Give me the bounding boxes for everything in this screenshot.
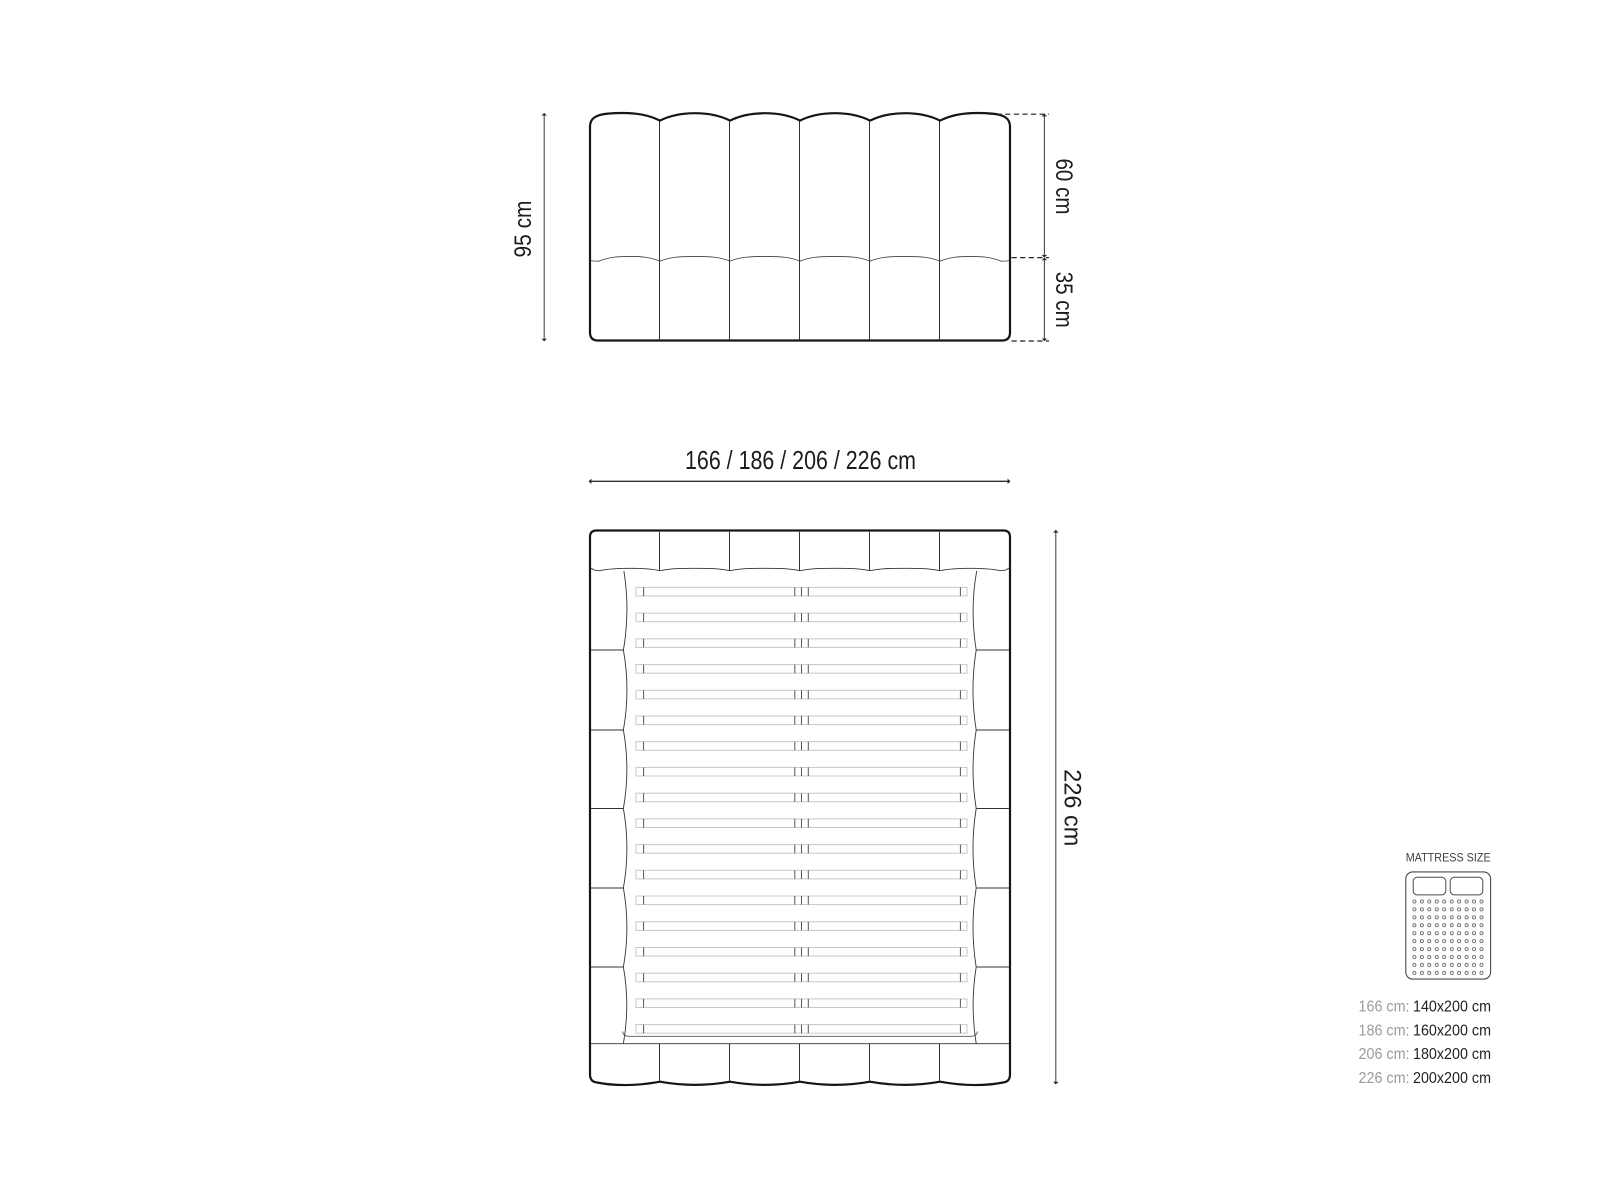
svg-text:140x200 cm: 140x200 cm — [1413, 998, 1491, 1015]
svg-text:35 cm: 35 cm — [1050, 272, 1077, 328]
svg-text:206 cm:: 206 cm: — [1359, 1046, 1410, 1063]
svg-text:166 cm:: 166 cm: — [1359, 998, 1410, 1015]
svg-text:95 cm: 95 cm — [510, 201, 537, 258]
svg-text:186 cm:: 186 cm: — [1359, 1022, 1410, 1039]
svg-text:226 cm: 226 cm — [1059, 769, 1086, 846]
svg-text:226 cm:: 226 cm: — [1359, 1070, 1410, 1087]
svg-text:166 / 186 / 206 / 226 cm: 166 / 186 / 206 / 226 cm — [685, 445, 916, 475]
svg-text:60 cm: 60 cm — [1050, 159, 1077, 215]
svg-text:200x200 cm: 200x200 cm — [1413, 1070, 1491, 1087]
svg-text:MATTRESS SIZE: MATTRESS SIZE — [1406, 850, 1491, 864]
svg-text:160x200 cm: 160x200 cm — [1413, 1022, 1491, 1039]
svg-text:180x200 cm: 180x200 cm — [1413, 1046, 1491, 1063]
